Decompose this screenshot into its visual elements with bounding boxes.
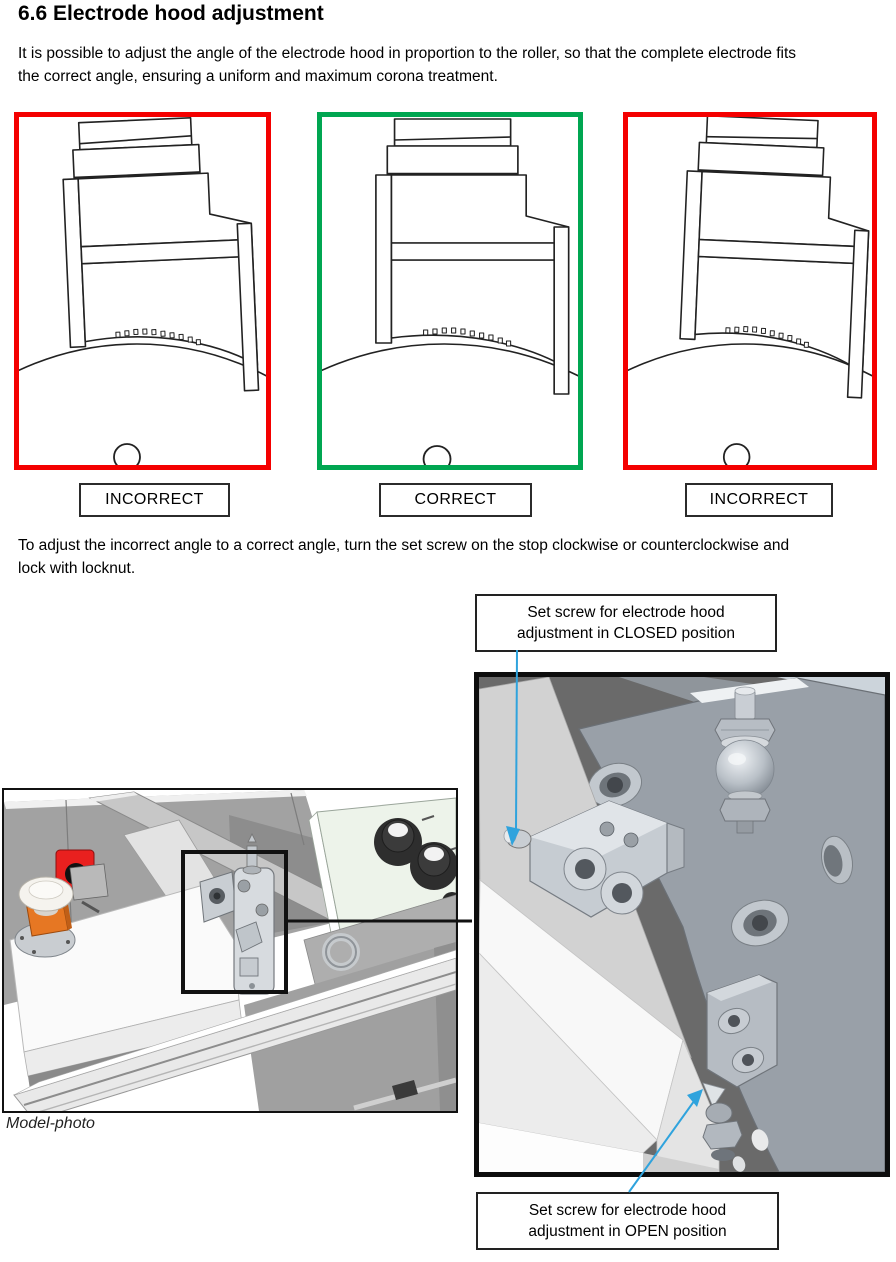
- section-heading: 6.6 Electrode hood adjustment: [18, 2, 324, 26]
- hood-roller-diagram-1: [19, 117, 266, 465]
- callout-open-position: Set screw for electrode hood adjustment …: [476, 1192, 779, 1250]
- hood-roller-diagram-3: [628, 117, 872, 465]
- diagram-label-incorrect-1: INCORRECT: [79, 483, 230, 517]
- intro-paragraph: It is possible to adjust the angle of th…: [18, 42, 800, 88]
- model-photo-image: [2, 788, 458, 1113]
- diagram-label-incorrect-2: INCORRECT: [685, 483, 833, 517]
- callout-closed-line1: Set screw for electrode hood: [479, 602, 773, 623]
- manual-page: 6.6 Electrode hood adjustment It is poss…: [0, 0, 896, 1262]
- set-screw-detail-render: [479, 677, 885, 1172]
- callout-open-line1: Set screw for electrode hood: [480, 1200, 775, 1221]
- diagram-label-correct: CORRECT: [379, 483, 532, 517]
- detail-zoom-image: [474, 672, 890, 1177]
- correct-diagram-frame: [317, 112, 583, 470]
- adjust-paragraph: To adjust the incorrect angle to a corre…: [18, 534, 800, 580]
- incorrect-diagram-frame-2: [623, 112, 877, 470]
- hood-roller-diagram-2: [322, 117, 578, 465]
- model-photo-caption: Model-photo: [6, 1115, 95, 1133]
- callout-open-line2: adjustment in OPEN position: [480, 1221, 775, 1242]
- callout-closed-line2: adjustment in CLOSED position: [479, 623, 773, 644]
- callout-closed-position: Set screw for electrode hood adjustment …: [475, 594, 777, 652]
- machine-corner-render: [4, 790, 456, 1111]
- incorrect-diagram-frame-1: [14, 112, 271, 470]
